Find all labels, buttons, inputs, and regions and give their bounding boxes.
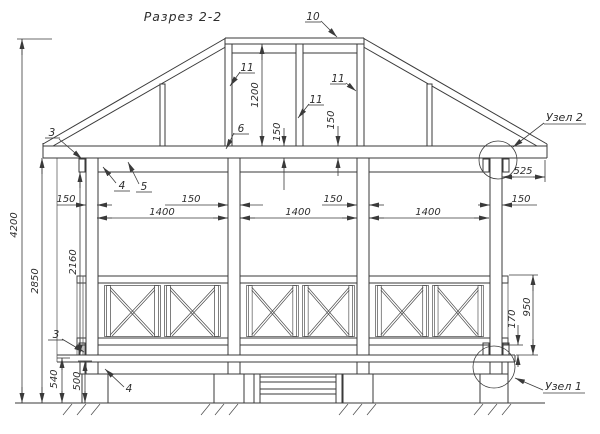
drawing-sheet: Разрез 2-2 4200 2850 2160 540 500 1200 1… — [0, 0, 600, 434]
eave-band — [43, 143, 547, 172]
roof-post-left — [225, 44, 232, 146]
drawing-title: Разрез 2-2 — [144, 9, 223, 24]
post-4 — [490, 158, 502, 355]
callout-10: 10 — [306, 11, 320, 23]
dim-bay3: 1400 — [415, 207, 440, 218]
post-3 — [357, 158, 369, 355]
callout-4-top: 4 — [119, 180, 126, 192]
callout-3-top: 3 — [49, 127, 56, 139]
dim-bay2: 1400 — [285, 207, 310, 218]
right-slope-strut — [427, 84, 432, 146]
dim-rail-gap: 170 — [507, 309, 518, 328]
node2-label: Узел 2 — [546, 111, 583, 124]
roof-structure — [43, 38, 547, 146]
dim-ground-to-joist: 500 — [72, 371, 83, 390]
dim-ground-to-deck: 540 — [49, 369, 60, 388]
gazebo-section-drawing: Разрез 2-2 4200 2850 2160 540 500 1200 1… — [0, 0, 600, 434]
dim-railing-height: 950 — [522, 297, 533, 316]
dim-total-height: 4200 — [9, 212, 20, 237]
callout-11-mid: 11 — [309, 94, 322, 106]
dim-eave-overhang: 525 — [513, 166, 532, 177]
callout-5: 5 — [141, 181, 148, 193]
dim-roof-height: 1200 — [250, 82, 261, 107]
left-slope-strut — [160, 84, 165, 146]
callout-11-right: 11 — [331, 73, 344, 85]
dim-post4-width: 150 — [511, 194, 530, 205]
roof-post-mid — [296, 44, 303, 146]
dim-post1-width: 150 — [56, 194, 75, 205]
post-2 — [228, 158, 240, 355]
leader-lines — [45, 21, 586, 393]
callout-11-left: 11 — [240, 62, 253, 74]
node1-label: Узел 1 — [545, 380, 582, 393]
callout-6: 6 — [238, 123, 245, 135]
ground-hatch — [63, 404, 511, 415]
post-1 — [86, 158, 98, 355]
callout-3-bottom: 3 — [53, 329, 60, 341]
dim-roof-band-right: 150 — [326, 110, 337, 129]
dim-floor-to-ceiling: 2160 — [68, 249, 79, 274]
dim-ground-to-ceiling: 2850 — [30, 268, 41, 293]
dim-post3-width: 150 — [323, 194, 342, 205]
roof-post-right — [357, 44, 364, 146]
dim-roof-band-left: 150 — [272, 122, 283, 141]
post-stubs — [86, 362, 502, 374]
callout-4-bottom: 4 — [126, 383, 133, 395]
ground-line — [15, 403, 545, 415]
posts — [86, 158, 502, 355]
steps — [254, 374, 342, 403]
railing — [77, 276, 508, 355]
dim-post2-width: 150 — [181, 194, 200, 205]
dim-bay1: 1400 — [149, 207, 174, 218]
floor-deck — [57, 158, 515, 374]
